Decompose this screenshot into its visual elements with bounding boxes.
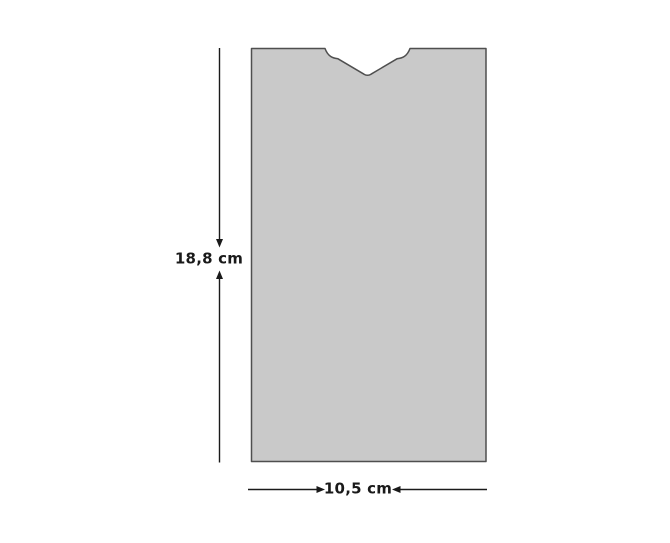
width-arrow-left-icon <box>392 486 401 493</box>
width-dimension-label: 10,5 cm <box>324 482 392 497</box>
height-arrow-up-icon <box>216 271 223 280</box>
height-dimension-label: 18,8 cm <box>175 252 243 267</box>
height-arrow-down-icon <box>216 239 223 248</box>
dimension-diagram: 18,8 cm 10,5 cm <box>0 0 670 543</box>
dimension-diagram-svg <box>0 0 670 543</box>
notched-panel-shape <box>252 49 487 462</box>
